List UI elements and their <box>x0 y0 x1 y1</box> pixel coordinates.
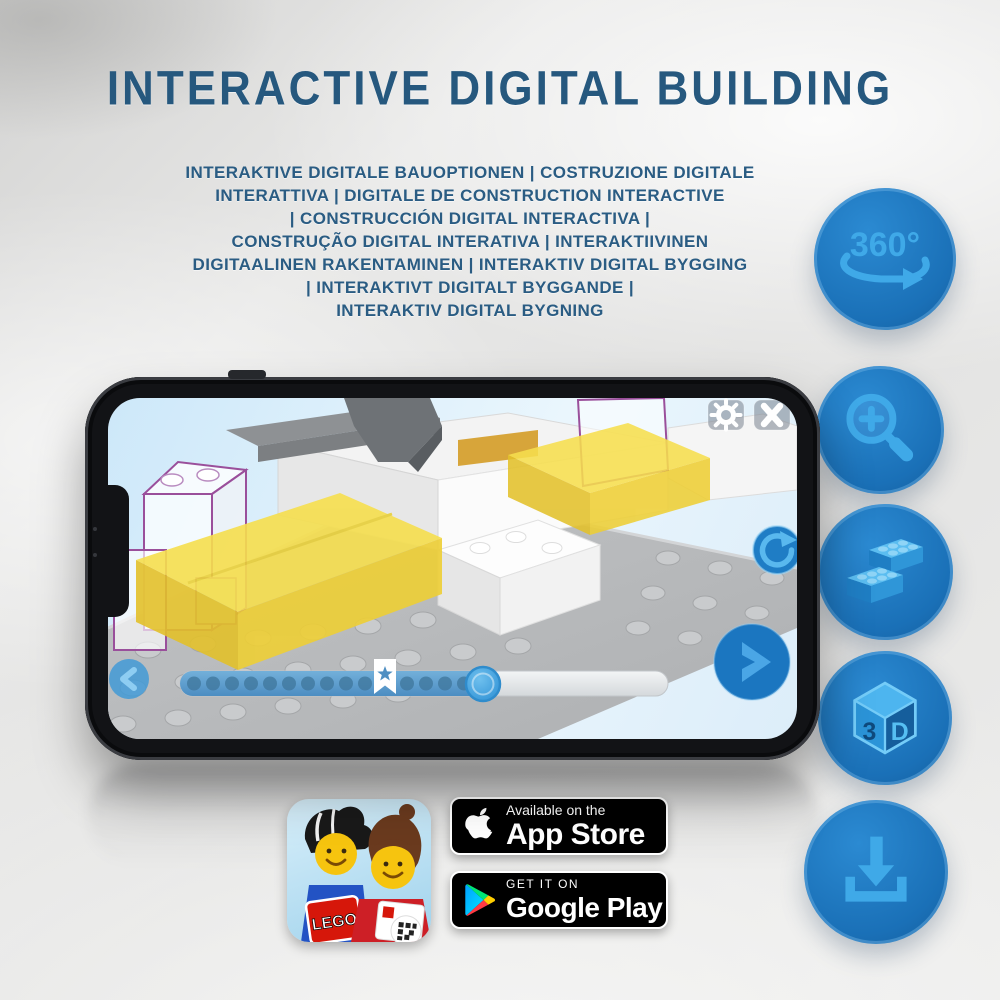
subtitle-line: CONSTRUÇÃO DIGITAL INTERATIVA | INTERAKT… <box>110 230 830 253</box>
phone-speaker-dot <box>93 553 97 557</box>
settings-button[interactable] <box>708 400 744 430</box>
lego-minifigures-illustration: LEGO <box>287 799 431 942</box>
google-play-label: Google Play <box>506 894 662 922</box>
bricks-icon <box>835 526 935 618</box>
cube-3d-icon: 3 D <box>839 672 931 764</box>
subtitle-line: INTERATTIVA | DIGITALE DE CONSTRUCTION I… <box>110 184 830 207</box>
label-d: D <box>891 719 909 746</box>
close-button[interactable] <box>754 400 790 430</box>
phone-side-button <box>228 370 266 379</box>
google-play-icon <box>464 882 496 918</box>
feature-circle-download <box>804 800 948 944</box>
progress-bar[interactable] <box>180 659 668 701</box>
apple-icon <box>464 807 496 845</box>
google-play-badge[interactable]: GET IT ON Google Play <box>450 871 668 929</box>
feature-circle-3d: 3 D <box>818 651 952 785</box>
app-store-tagline: Available on the <box>506 803 645 817</box>
phone-screen <box>108 398 797 739</box>
google-play-tagline: GET IT ON <box>506 878 662 890</box>
rotate-button[interactable] <box>753 526 797 574</box>
next-step-button[interactable] <box>714 624 790 700</box>
subtitle-block: INTERAKTIVE DIGITALE BAUOPTIONEN | COSTR… <box>110 161 830 322</box>
subtitle-line: DIGITAALINEN RAKENTAMINEN | INTERAKTIV D… <box>110 253 830 276</box>
phone-camera-dot <box>93 527 97 531</box>
prev-step-button[interactable] <box>109 659 149 699</box>
feature-circle-zoom <box>816 366 944 494</box>
download-icon <box>828 829 924 915</box>
phone-notch <box>103 485 129 617</box>
feature-circle-360: 360° <box>814 188 956 330</box>
app-store-badge[interactable]: Available on the App Store <box>450 797 668 855</box>
progress-slider-knob[interactable] <box>466 667 500 701</box>
subtitle-line: | CONSTRUCCIÓN DIGITAL INTERACTIVA | <box>110 207 830 230</box>
phone-mockup <box>85 377 820 760</box>
rotate-360-icon: 360° <box>833 220 937 298</box>
feature-label-360: 360° <box>850 226 920 264</box>
lego-app-icon[interactable]: LEGO <box>287 799 431 942</box>
subtitle-line: INTERAKTIV DIGITAL BYGNING <box>110 299 830 322</box>
label-3: 3 <box>862 719 876 746</box>
app-ui-overlay <box>108 398 797 739</box>
app-store-label: App Store <box>506 820 645 850</box>
subtitle-line: | INTERAKTIVT DIGITALT BYGGANDE | <box>110 276 830 299</box>
zoom-in-icon <box>837 387 923 473</box>
feature-circle-bricks <box>817 504 953 640</box>
page-title: INTERACTIVE DIGITAL BUILDING <box>0 62 1000 117</box>
poster: INTERACTIVE DIGITAL BUILDING INTERAKTIVE… <box>0 0 1000 1000</box>
progress-dots <box>187 677 471 691</box>
subtitle-line: INTERAKTIVE DIGITALE BAUOPTIONEN | COSTR… <box>110 161 830 184</box>
